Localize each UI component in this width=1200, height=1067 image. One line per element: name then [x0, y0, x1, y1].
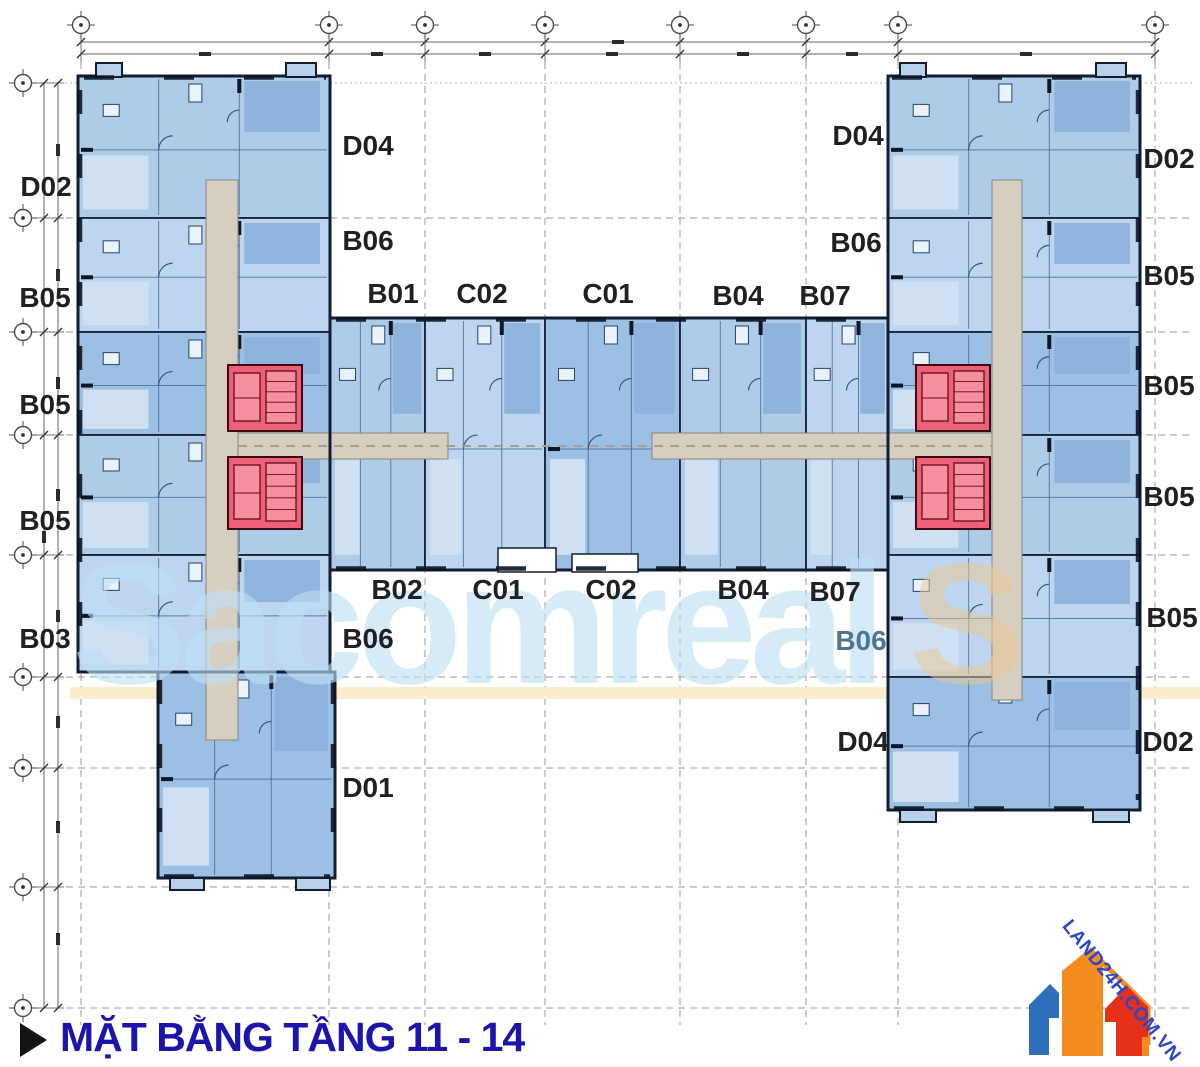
unit-label: B06 [830, 227, 881, 259]
plan-title: MẶT BẰNG TẦNG 11 - 14 [20, 1014, 524, 1061]
unit-label: D04 [837, 726, 888, 758]
unit-label: C01 [472, 574, 523, 606]
unit-label: B05 [1143, 260, 1194, 292]
unit-label: D02 [1142, 726, 1193, 758]
unit-label: B05 [1143, 370, 1194, 402]
unit-label: C02 [456, 278, 507, 310]
unit-label: B02 [371, 574, 422, 606]
unit-label: B06 [835, 625, 886, 657]
unit-label: B07 [809, 576, 860, 608]
unit-label: D04 [832, 120, 883, 152]
unit-label: D04 [342, 130, 393, 162]
unit-label: B04 [717, 574, 768, 606]
unit-label: B05 [1146, 602, 1197, 634]
unit-label: B05 [19, 389, 70, 421]
unit-label: D01 [342, 772, 393, 804]
unit-label: C01 [582, 278, 633, 310]
floorplan-page: SacomrealS D02 B05 B05 B05 B03 D04 B06 B… [0, 0, 1200, 1067]
floorplan-drawing [0, 0, 1200, 1067]
play-triangle-icon [20, 1023, 47, 1057]
unit-label: B03 [19, 623, 70, 655]
plan-title-text: MẶT BẰNG TẦNG 11 - 14 [60, 1014, 524, 1061]
unit-label: B01 [367, 278, 418, 310]
unit-label: B05 [1143, 481, 1194, 513]
unit-label: B07 [799, 280, 850, 312]
unit-label: B05 [19, 505, 70, 537]
unit-label: B05 [19, 282, 70, 314]
unit-label: B06 [342, 225, 393, 257]
unit-label: C02 [585, 574, 636, 606]
unit-label: B04 [712, 280, 763, 312]
unit-label: D02 [20, 171, 71, 203]
unit-label: D02 [1143, 143, 1194, 175]
unit-label: B06 [342, 623, 393, 655]
